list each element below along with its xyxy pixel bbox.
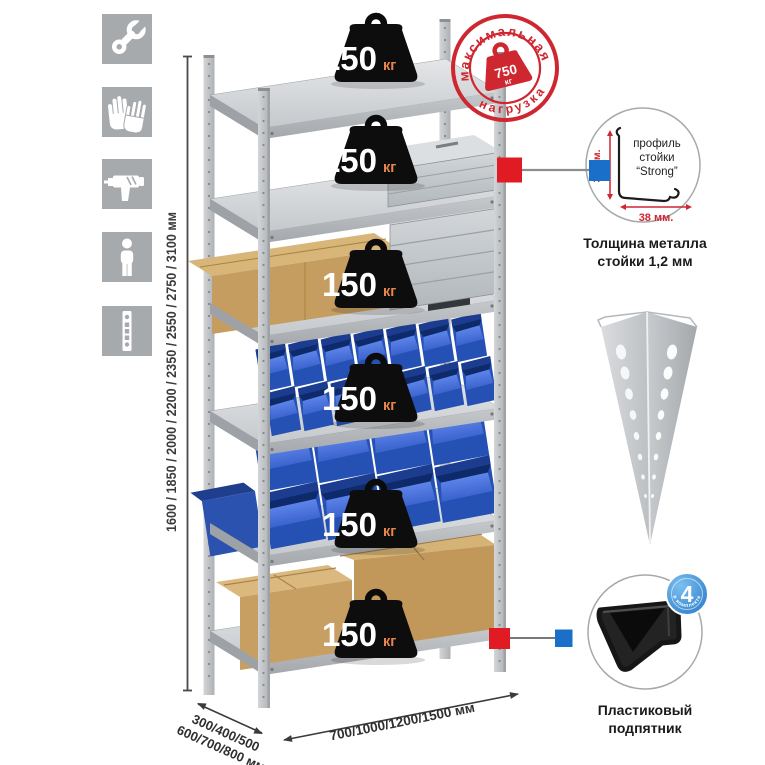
load-badge: 150 кг [322,16,425,89]
kit-count-badge: 4 в комплекте [666,573,708,615]
profile-caption-line1: Толщина металла [560,234,730,252]
load-unit: кг [383,524,396,540]
max-load-stamp: максимальная нагрузка 750 кг [442,5,568,131]
profile-label-2: стойки [639,152,674,164]
load-value: 150 [322,380,377,417]
height-options-label: 1600 / 1850 / 2000 / 2200 / 2350 / 2550 … [164,212,179,532]
load-badge: 150 кг [322,118,425,191]
callout-connectors [489,158,610,650]
profile-label-3: “Strong” [636,166,678,178]
callout-marker-red-top [497,158,522,183]
load-unit: кг [383,58,396,74]
callout-marker-red-bottom [489,628,510,649]
depth-dimension: 300/400/500 600/700/800 мм [175,703,275,765]
load-value: 150 [322,142,377,179]
width-options-label: 700/1000/1200/1500 мм [328,700,476,744]
load-unit: кг [383,160,396,176]
load-unit: кг [383,634,396,650]
profile-label-1: профиль [633,138,681,150]
profile-caption: Толщина металла стойки 1,2 мм [560,234,730,270]
load-value: 150 [322,616,377,653]
load-unit: кг [383,284,396,300]
shelving-unit [183,19,506,708]
load-unit: кг [383,398,396,414]
shelving-scene: 150 кг 150 кг 150 кг 150 кг [0,0,765,765]
load-value: 150 [322,266,377,303]
profile-caption-line2: стойки 1,2 мм [560,252,730,270]
width-dimension: 700/1000/1200/1500 мм [283,692,519,743]
foot-caption-line2: подпятник [560,719,730,737]
height-dimension: 1600 / 1850 / 2000 / 2200 / 2350 / 2550 … [164,57,192,691]
callout-marker-blue-bottom [555,630,573,648]
plastic-foot-detail: 4 в комплекте [588,573,708,689]
load-value: 150 [322,506,377,543]
foot-caption-line1: Пластиковый [560,701,730,719]
profile-dim-horizontal: 38 мм. [639,212,674,224]
foot-caption: Пластиковый подпятник [560,701,730,737]
callout-marker-blue-top [589,160,610,181]
load-value: 150 [322,40,377,77]
product-infographic: 150 кг 150 кг 150 кг 150 кг [0,0,765,765]
corner-post-image [598,312,697,545]
